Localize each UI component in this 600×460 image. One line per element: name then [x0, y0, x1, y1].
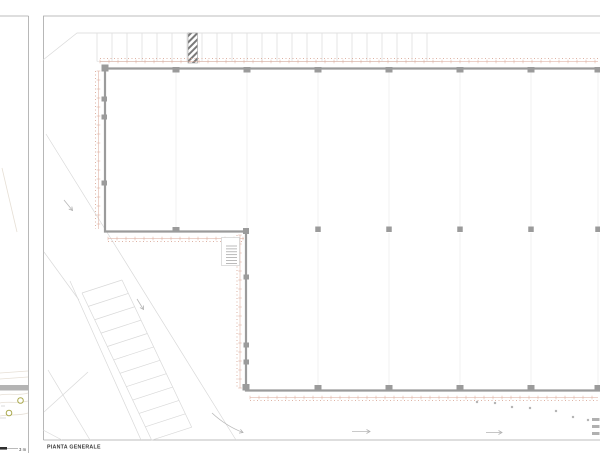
pilaster [102, 97, 108, 102]
ramp-hatch [188, 33, 198, 63]
column [386, 227, 392, 233]
parking-stall-divider [120, 360, 160, 373]
road-edge-line [44, 372, 88, 412]
left-panel: 3 m [0, 16, 29, 453]
tree-symbol [18, 398, 24, 404]
edge-dash [592, 425, 600, 428]
contour-line [0, 401, 28, 403]
column [386, 67, 393, 73]
tree-dot [587, 419, 589, 421]
column [315, 67, 322, 73]
small-direction-arrow [64, 200, 73, 211]
dimension-lines [96, 59, 599, 401]
pilaster [102, 115, 108, 120]
external-stair [222, 238, 240, 266]
road-edge-line [44, 252, 79, 300]
drawing-title: PIANTA GENERALE [47, 445, 101, 451]
column [315, 227, 321, 233]
parking-stall-divider [133, 387, 173, 400]
small-direction-arrow [137, 299, 144, 310]
edge-dash [592, 432, 600, 435]
parking-stall-divider [82, 280, 122, 293]
column [173, 67, 180, 73]
column [595, 67, 600, 73]
scale-bar-label: 3 m [19, 447, 27, 452]
parking-stall-divider [114, 347, 154, 360]
site-boundary-line [43, 33, 600, 60]
column [457, 227, 463, 233]
column [528, 67, 535, 73]
main-frame [44, 16, 600, 440]
landscape-dots [476, 401, 589, 421]
corner-column [243, 228, 249, 234]
top-parking-stalls [97, 33, 440, 62]
parking-stall-divider [152, 427, 192, 440]
column [595, 385, 600, 391]
column [595, 227, 600, 233]
left-panel-faint-lines [0, 371, 28, 379]
column [386, 385, 393, 391]
tree-dot [494, 402, 496, 404]
column [457, 67, 464, 73]
tree-symbol [6, 410, 12, 416]
pilaster [244, 360, 250, 365]
tree-dot [572, 416, 574, 418]
tree-dot [555, 410, 557, 412]
column [528, 227, 534, 233]
scale-bar-block [0, 447, 7, 450]
column [244, 67, 251, 73]
parking-stall-divider [101, 320, 141, 333]
contour-line [0, 393, 28, 395]
column [315, 385, 322, 391]
column [528, 385, 535, 391]
column [457, 385, 464, 391]
pilaster [244, 343, 250, 348]
parking-stall-divider [107, 334, 147, 347]
road-edge-line [46, 134, 236, 440]
pilaster [244, 275, 250, 280]
road-edge-line [43, 430, 62, 440]
pilaster [102, 181, 108, 186]
scale-bar: 3 m [0, 447, 27, 452]
tree-dot [529, 407, 531, 409]
left-panel-faint-line [2, 168, 17, 232]
parking-stall-divider [139, 400, 179, 413]
tree-dot [511, 406, 513, 408]
road-edge-line [70, 281, 141, 440]
edge-dashes [592, 418, 600, 435]
parking-stall-divider [126, 374, 166, 387]
contour-line [0, 413, 28, 416]
corner-column [102, 65, 109, 72]
parking-stall-divider [95, 307, 135, 320]
road-edge-line [48, 370, 90, 440]
road-lines [43, 134, 236, 440]
tree-dot [476, 401, 478, 403]
stair-treads [226, 246, 237, 263]
parking-stall-divider [145, 414, 185, 427]
site-plan-canvas: 3 m PIANTA GENERALE [0, 0, 600, 460]
angled-parking [82, 280, 192, 440]
frame-top-left-border [44, 16, 600, 440]
parking-stall-divider [88, 293, 128, 306]
curved-flow-arrow [212, 413, 243, 433]
corner-column [243, 384, 250, 391]
edge-dash [592, 418, 600, 421]
left-panel-wall-bar [0, 385, 29, 391]
corner-column [173, 227, 180, 232]
